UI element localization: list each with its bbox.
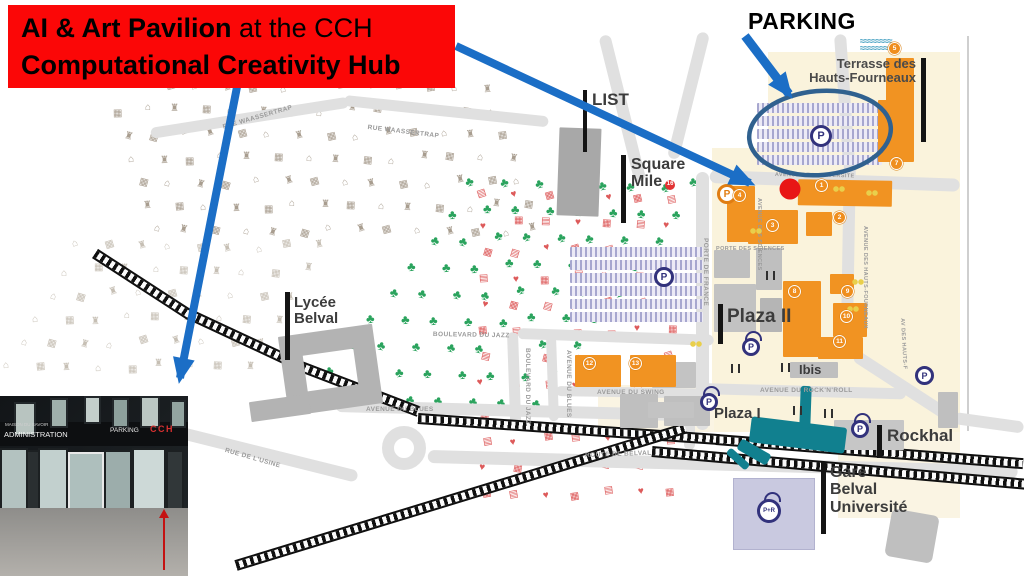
street-label-jazz: BOULEVARD DU JAZZ [433, 331, 510, 339]
street-label-porte-france: PORTE DE FRANCE [702, 238, 709, 306]
label-bar [921, 58, 926, 142]
building [714, 250, 750, 278]
photo-window [50, 398, 68, 428]
label-lycee: Lycée Belval [294, 295, 338, 327]
label-gare-line3: Université [830, 499, 907, 516]
building-badge: 7 [890, 157, 903, 170]
street-label-sciences: AVENUE DES SCIENCES [756, 198, 762, 271]
water-waves: ≈≈≈≈≈≈≈≈≈≈≈≈≈≈≈≈ [860, 38, 892, 52]
building-orange [878, 100, 914, 162]
photo-pavement [0, 508, 188, 576]
list-building [556, 127, 601, 216]
label-bar [583, 90, 587, 152]
car-icon [852, 279, 864, 285]
railway-segment [92, 249, 194, 321]
street-label-blues-vertical: AVENUE DU BLUES [565, 350, 572, 418]
parking-icon: P [742, 338, 760, 356]
label-gare-line2: Belval [830, 481, 877, 498]
rockhal-building [884, 508, 940, 564]
photo-red-arrow-head [159, 509, 169, 518]
building-badge: 13 [629, 357, 642, 370]
building-badge: 10 [840, 310, 853, 323]
street-label-porte-sciences: PORTE DES SCIENCES [716, 246, 785, 252]
photo-sign-parking: PARKING [110, 427, 139, 434]
banner-title-bold: AI & Art Pavilion [21, 13, 232, 43]
restaurant-icon [766, 271, 775, 280]
label-bar [621, 155, 626, 223]
building-badge: 2 [833, 211, 846, 224]
label-lycee-line2: Belval [294, 310, 338, 327]
photo-entrance-door [68, 452, 104, 512]
photo-glass-door [132, 448, 166, 512]
label-bar [821, 462, 826, 534]
label-square-line2: Mile [631, 173, 662, 190]
car-icon [750, 228, 762, 234]
car-icon [833, 186, 845, 192]
slide-canvas: ⌂♜▦⌂♜▦⌂♜▦⌂♜▦⌂♜▦⌂♜▦⌂♜▦⌂♜▦⌂♜▦⌂♜▦⌂♜▦⌂♜▦⌂♜▦⌂… [0, 0, 1024, 576]
map-edge-line [967, 36, 969, 431]
lycee-building-annex [249, 394, 311, 422]
building-orange [806, 212, 832, 236]
photo-sign-cch: CCH [150, 424, 174, 434]
parking-icon: P [654, 267, 674, 287]
restaurant-icon [731, 364, 740, 373]
building [648, 402, 694, 418]
street-label-blues: AVENUE DU BLUES [366, 406, 434, 413]
photo-red-arrow-shaft [163, 518, 165, 570]
parking-callout-label: PARKING [748, 8, 856, 35]
car-icon [866, 190, 878, 196]
parking-lot-central [570, 247, 703, 325]
building-badge: 4 [733, 189, 746, 202]
photo-window [112, 398, 129, 428]
building-badge: 1 [815, 179, 828, 192]
label-terrasse: Terrasse des Hauts-Fourneaux [786, 57, 916, 85]
road [667, 31, 710, 160]
railway-segment [234, 423, 687, 571]
street-label-swing: AVENUE DU SWING [597, 389, 665, 396]
label-gare-line1: Gare [830, 464, 866, 481]
restaurant-icon [781, 363, 790, 372]
label-terrasse-line2: Hauts-Fourneaux [809, 70, 916, 85]
building-badge: 3 [766, 219, 779, 232]
label-bar [285, 292, 290, 360]
label-rockhal: Rockhal [887, 427, 953, 445]
label-square-line1: Square [631, 156, 685, 173]
label-lycee-line1: Lycée [294, 294, 336, 311]
photo-sign-administration: ADMINISTRATION [4, 430, 68, 439]
photo-window [84, 396, 101, 424]
park-and-ride-icon: P+R [757, 499, 781, 523]
roundabout [382, 426, 426, 470]
car-icon [690, 341, 702, 347]
building-badge: 11 [833, 335, 846, 348]
label-plaza1: Plaza I [714, 406, 761, 422]
restaurant-icon [824, 409, 833, 418]
label-ibis: Ibis [799, 363, 821, 377]
photo-wall [166, 450, 184, 512]
street-label-hauts-fourneaux: AVENUE DES HAUTS-FOURNEAUX [862, 226, 868, 329]
road [953, 412, 1024, 434]
square-mile-badge: 16 [665, 180, 675, 190]
restaurant-icon [793, 406, 802, 415]
building-badge: 5 [888, 42, 901, 55]
building-badge: 8 [788, 285, 801, 298]
building-orange [575, 355, 621, 387]
parking-icon: P [810, 125, 832, 147]
street-label-jazz-vertical: BOULEVARD DU JAZZ [524, 348, 531, 425]
label-bar [877, 425, 882, 458]
label-terrasse-line1: Terrasse des [837, 56, 916, 71]
photo-glass-door [0, 448, 28, 512]
building-badge: 12 [583, 357, 596, 370]
label-gare: Gare Belval Université [830, 464, 907, 516]
photo-sign-maison: MAISON DU SAVOIR [5, 422, 48, 427]
label-bar [718, 304, 723, 344]
label-list: LIST [592, 91, 629, 109]
cch-entrance-photo: MAISON DU SAVOIR ADMINISTRATION PARKING … [0, 396, 188, 576]
street-label-waassertrap: RUE WAASSERTRAP [367, 124, 439, 140]
photo-glass-door [104, 450, 132, 512]
banner-title-rest: at the CCH [232, 13, 373, 43]
label-plaza2: Plaza II [727, 307, 791, 328]
title-banner: AI & Art Pavilion at the CCH Computation… [8, 5, 455, 88]
banner-subtitle: Computational Creativity Hub [21, 50, 401, 81]
building-orange [798, 179, 892, 207]
label-square-mile: Square Mile16 [631, 156, 685, 191]
parking-icon: P [915, 366, 934, 385]
parking-icon: P [851, 420, 869, 438]
building [938, 392, 958, 428]
building-badge: 9 [841, 285, 854, 298]
photo-glass-door [38, 448, 68, 514]
street-label-rocknroll: AVENUE DU ROCK'N'ROLL [760, 387, 853, 394]
